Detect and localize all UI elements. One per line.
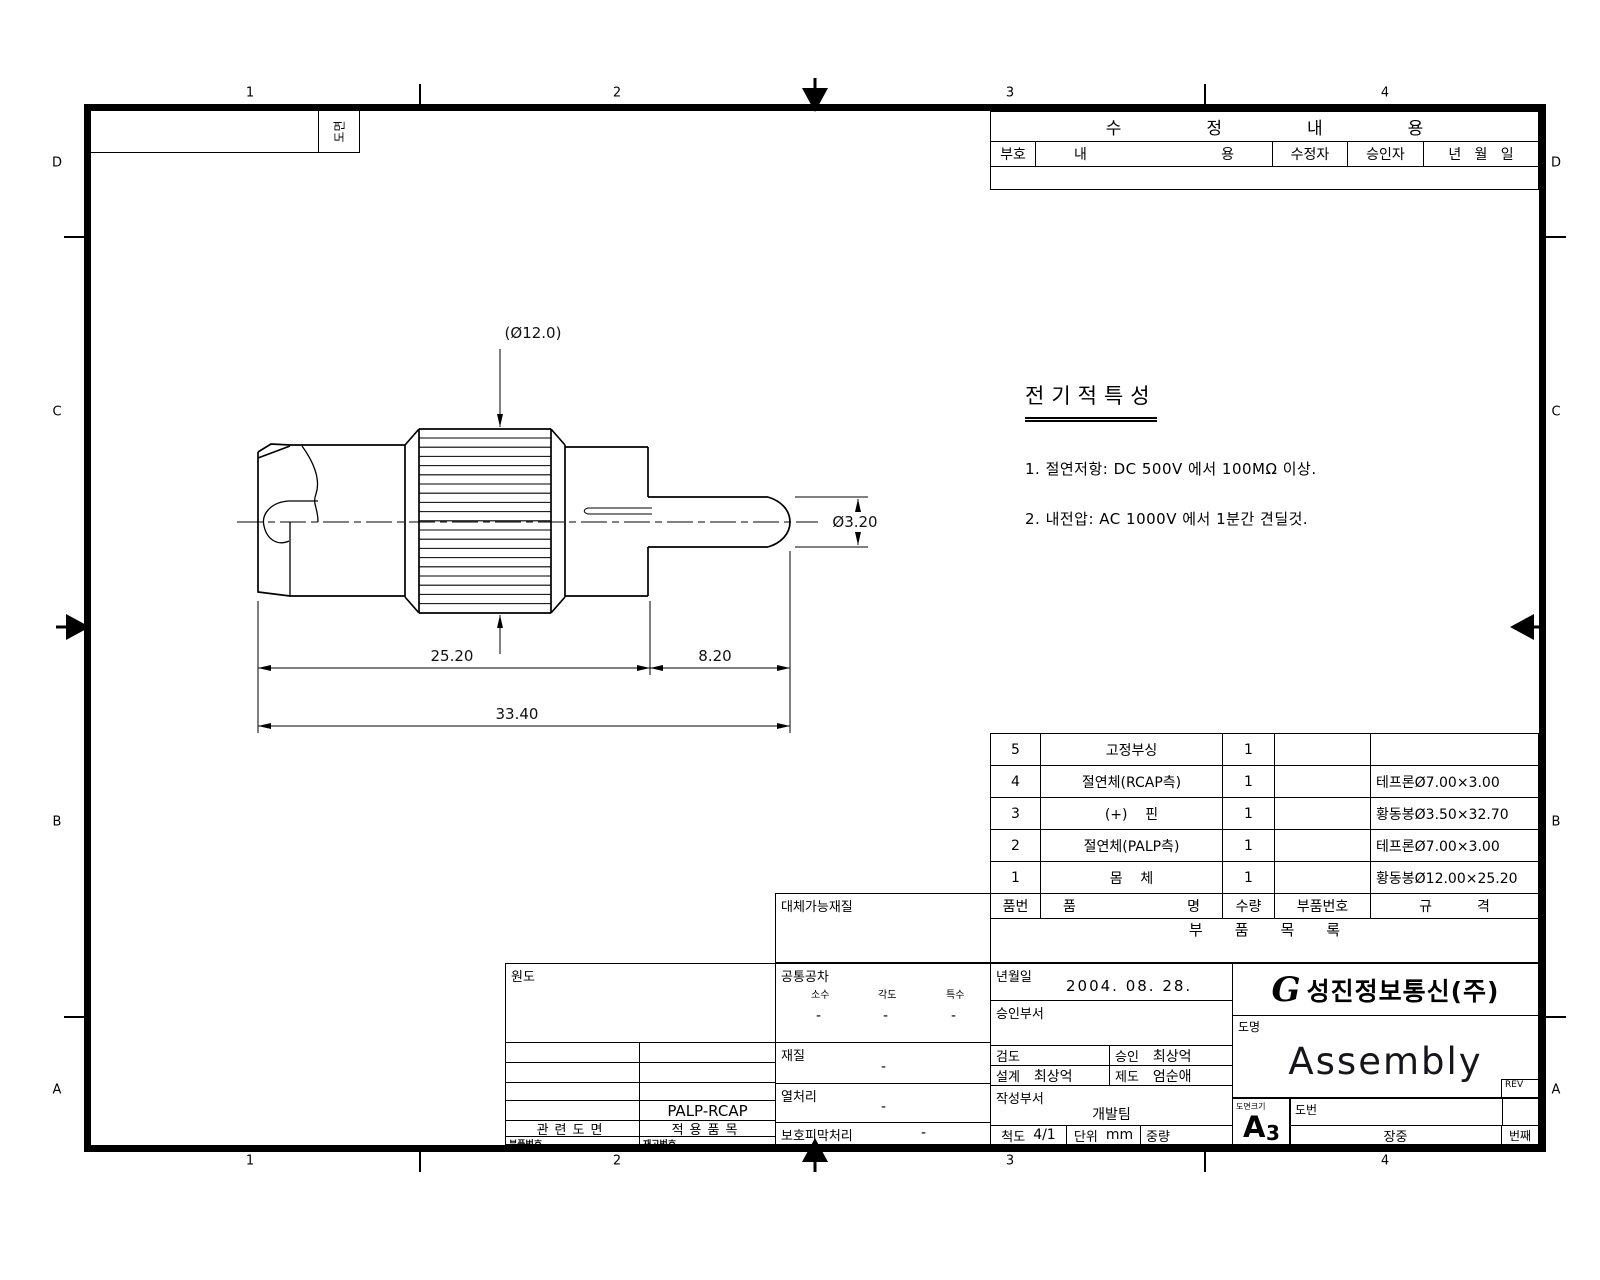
heat-treatment-value: - bbox=[881, 1099, 886, 1115]
design-label: 설계 bbox=[996, 1066, 1020, 1085]
part-qty: 1 bbox=[1223, 734, 1275, 765]
zone-left-b: B bbox=[53, 815, 62, 830]
material-label: 재질 bbox=[781, 1045, 805, 1064]
drawing-title-value: Assembly bbox=[1288, 1040, 1482, 1083]
parts-footer-row: 부품목록 bbox=[991, 919, 1538, 940]
material-value: - bbox=[881, 1059, 886, 1075]
scale-unit-weight-row: 척도 4/1 단위 mm 중량 bbox=[990, 1125, 1233, 1145]
unit-value: mm bbox=[1106, 1127, 1133, 1143]
part-spec: 테프론Ø7.00×3.00 bbox=[1371, 830, 1538, 861]
zone-left-c: C bbox=[52, 405, 61, 420]
zone-right-a: A bbox=[1552, 1083, 1561, 1098]
corner-label-cell: 도면 bbox=[319, 111, 359, 151]
rev-label: REV bbox=[1501, 1079, 1538, 1097]
parts-list-title: 부품목록 bbox=[1189, 919, 1372, 940]
knurl-lines bbox=[419, 438, 551, 604]
part-name: 절연체(RCAP측) bbox=[1041, 766, 1223, 797]
drawing-title-label: 도명 bbox=[1238, 1018, 1260, 1035]
related-drawing-label: 관련도면 bbox=[506, 1121, 640, 1136]
zone-right-d: D bbox=[1551, 156, 1561, 171]
zone-top-2: 2 bbox=[613, 86, 621, 101]
drawing-no-box: 도번 bbox=[1289, 1098, 1539, 1126]
approval-dept-box: 승인부서 bbox=[990, 1000, 1233, 1046]
applied-item-value: PALP-RCAP bbox=[640, 1101, 775, 1120]
zone-top-4: 4 bbox=[1381, 86, 1389, 101]
dimension-lines bbox=[258, 349, 868, 733]
part-no-small-label: 부품번호 bbox=[506, 1137, 640, 1150]
approve-value: 최상억 bbox=[1153, 1046, 1192, 1066]
dimension-labels: (Ø12.0) 25.20 8.20 33.40 Ø3.20 bbox=[431, 324, 878, 723]
revision-col-no: 부호 bbox=[991, 142, 1036, 166]
zone-tick bbox=[1204, 1152, 1206, 1172]
revision-header-row: 부호 내 용 수정자 승인자 년 월 일 bbox=[991, 142, 1538, 167]
company-box: G 성진정보통신(주) bbox=[1232, 963, 1539, 1016]
parts-row: 2 절연체(PALP측) 1 테프론Ø7.00×3.00 bbox=[991, 830, 1538, 862]
parts-row: 1 몸 체 1 황동봉Ø12.00×25.20 bbox=[991, 862, 1538, 894]
origin-label: 원도 bbox=[511, 966, 535, 985]
date-box: 년월일 2004. 08. 28. bbox=[990, 963, 1233, 1001]
coating-label: 보호피막처리 bbox=[781, 1125, 853, 1144]
approve-label: 승인 bbox=[1115, 1046, 1139, 1065]
part-partno bbox=[1275, 862, 1371, 893]
revision-title: 수정내용 bbox=[1106, 114, 1509, 139]
scale-label: 척도 bbox=[1001, 1126, 1025, 1145]
heat-treatment-label: 열처리 bbox=[781, 1086, 817, 1105]
origin-box: 원도 bbox=[505, 963, 776, 1043]
parts-row: 4 절연체(RCAP측) 1 테프론Ø7.00×3.00 bbox=[991, 766, 1538, 798]
sheet-of-label: 장중 bbox=[1290, 1126, 1502, 1144]
parts-row: 3 (+) 핀 1 황동봉Ø3.50×32.70 bbox=[991, 798, 1538, 830]
corner-label: 도면 bbox=[331, 120, 348, 142]
zone-bottom-2: 2 bbox=[613, 1154, 621, 1169]
tolerance-val-special: - bbox=[951, 1008, 956, 1024]
company-name: 성진정보통신(주) bbox=[1307, 972, 1500, 1008]
scale-value: 4/1 bbox=[1033, 1127, 1056, 1143]
drawing-no-label: 도번 bbox=[1295, 1101, 1317, 1118]
grid-small-label-row: 부품번호 재고번호 bbox=[506, 1137, 775, 1150]
revision-col-approver: 승인자 bbox=[1348, 142, 1424, 166]
part-partno bbox=[1275, 830, 1371, 861]
writing-dept-box: 작성부서 개발팀 bbox=[990, 1085, 1233, 1126]
parts-header-spec: 규격 bbox=[1371, 894, 1538, 918]
company-logo-icon: G bbox=[1272, 973, 1301, 1007]
tolerance-val-decimal: - bbox=[816, 1008, 821, 1024]
zone-tick bbox=[1546, 236, 1566, 238]
zone-bottom-1: 1 bbox=[246, 1154, 254, 1169]
draft-label: 제도 bbox=[1115, 1066, 1139, 1085]
zone-tick bbox=[1204, 84, 1206, 104]
drawing-title-box: 도명 Assembly REV bbox=[1232, 1015, 1539, 1098]
dim-pin-dia: Ø3.20 bbox=[832, 513, 877, 531]
zone-top-3: 3 bbox=[1006, 86, 1014, 101]
heat-treatment-box: 열처리 - bbox=[775, 1083, 991, 1123]
revision-title-row: 수정내용 bbox=[991, 112, 1538, 142]
engineering-drawing-sheet: { "sheet": { "zones_h": ["1","2","3","4"… bbox=[0, 0, 1600, 1280]
dim-total-length: 33.40 bbox=[496, 705, 539, 723]
approval-dept-label: 승인부서 bbox=[996, 1003, 1044, 1022]
rev-empty-cell bbox=[1502, 1099, 1538, 1125]
writing-dept-label: 작성부서 bbox=[996, 1088, 1044, 1107]
part-partno bbox=[1275, 734, 1371, 765]
revision-table: 수정내용 부호 내 용 수정자 승인자 년 월 일 bbox=[990, 111, 1539, 190]
parts-header-name: 품명 bbox=[1041, 894, 1223, 918]
sheet-nth-label: 번째 bbox=[1502, 1126, 1538, 1144]
part-spec: 황동봉Ø3.50×32.70 bbox=[1371, 798, 1538, 829]
grid-label-row: 관련도면 적용품목 bbox=[506, 1121, 775, 1137]
part-no: 4 bbox=[991, 766, 1041, 797]
sheet-size-value-3: 3 bbox=[1266, 1121, 1280, 1145]
related-drawing-grid: PALP-RCAP 관련도면 적용품목 부품번호 재고번호 bbox=[505, 1042, 776, 1145]
sheet-size-value-a: A bbox=[1243, 1110, 1265, 1144]
check-approve-row: 검도 승인 최상억 bbox=[990, 1045, 1233, 1066]
part-qty: 1 bbox=[1223, 830, 1275, 861]
applied-value-row: PALP-RCAP bbox=[506, 1101, 775, 1121]
parts-table: 5 고정부싱 1 4 절연체(RCAP측) 1 테프론Ø7.00×3.00 3 … bbox=[990, 733, 1539, 963]
draft-value: 엄순애 bbox=[1153, 1066, 1192, 1086]
connector-drawing: (Ø12.0) 25.20 8.20 33.40 Ø3.20 bbox=[200, 300, 900, 760]
tolerance-col-special: 특수 bbox=[946, 986, 964, 1001]
coating-box: 보호피막처리 - bbox=[775, 1122, 991, 1145]
zone-bottom-3: 3 bbox=[1006, 1154, 1014, 1169]
part-qty: 1 bbox=[1223, 766, 1275, 797]
sheet-count-row: 장중 번째 bbox=[1289, 1125, 1539, 1145]
unit-label: 단위 bbox=[1074, 1126, 1098, 1145]
design-value: 최상억 bbox=[1034, 1066, 1073, 1086]
zone-tick bbox=[419, 84, 421, 104]
part-partno bbox=[1275, 766, 1371, 797]
dim-pin-length: 8.20 bbox=[698, 647, 731, 665]
tolerance-label: 공통공차 bbox=[781, 966, 829, 985]
revision-col-date: 년 월 일 bbox=[1424, 142, 1538, 166]
part-no: 1 bbox=[991, 862, 1041, 893]
part-no: 2 bbox=[991, 830, 1041, 861]
part-partno bbox=[1275, 798, 1371, 829]
parts-header-qty: 수량 bbox=[1223, 894, 1275, 918]
electrical-note-2: 2. 내전압: AC 1000V 에서 1분간 견딜것. bbox=[1025, 508, 1317, 529]
alt-material-label: 대체가능재질 bbox=[781, 896, 853, 915]
dim-knurl-dia: (Ø12.0) bbox=[505, 324, 562, 342]
zone-left-a: A bbox=[53, 1083, 62, 1098]
check-label: 검도 bbox=[991, 1046, 1110, 1065]
tolerance-val-angle: - bbox=[883, 1008, 888, 1024]
design-draft-row: 설계 최상억 제도 엄순애 bbox=[990, 1065, 1233, 1086]
part-qty: 1 bbox=[1223, 798, 1275, 829]
zone-tick bbox=[64, 236, 84, 238]
part-name: 절연체(PALP측) bbox=[1041, 830, 1223, 861]
part-qty: 1 bbox=[1223, 862, 1275, 893]
material-box: 재질 - bbox=[775, 1042, 991, 1084]
zone-left-d: D bbox=[52, 156, 62, 171]
parts-header-partno: 부품번호 bbox=[1275, 894, 1371, 918]
zone-tick bbox=[419, 1152, 421, 1172]
sheet-size-box: 도면크기 A 3 bbox=[1232, 1098, 1291, 1145]
tolerance-box: 공통공차 소수 각도 특수 - - - bbox=[775, 963, 991, 1043]
date-value: 2004. 08. 28. bbox=[1066, 977, 1192, 995]
coating-value: - bbox=[921, 1125, 926, 1141]
revision-col-content-l: 내 bbox=[1074, 144, 1087, 164]
zone-right-c: C bbox=[1551, 405, 1560, 420]
revision-col-content: 내 용 bbox=[1036, 142, 1273, 166]
electrical-title: 전기적특성 bbox=[1025, 380, 1157, 422]
part-spec: 황동봉Ø12.00×25.20 bbox=[1371, 862, 1538, 893]
tolerance-col-decimal: 소수 bbox=[811, 986, 829, 1001]
part-spec bbox=[1371, 734, 1538, 765]
revision-col-content-r: 용 bbox=[1221, 144, 1234, 164]
date-label: 년월일 bbox=[996, 966, 1032, 985]
alt-material-box: 대체가능재질 bbox=[775, 893, 991, 963]
parts-row: 5 고정부싱 1 bbox=[991, 734, 1538, 766]
weight-label: 중량 bbox=[1141, 1126, 1232, 1144]
part-name: (+) 핀 bbox=[1041, 798, 1223, 829]
part-no: 3 bbox=[991, 798, 1041, 829]
writing-dept-value: 개발팀 bbox=[1092, 1104, 1131, 1124]
zone-bottom-4: 4 bbox=[1381, 1154, 1389, 1169]
dim-body-length: 25.20 bbox=[431, 647, 474, 665]
zone-tick bbox=[1546, 1016, 1566, 1018]
part-spec: 테프론Ø7.00×3.00 bbox=[1371, 766, 1538, 797]
applied-item-label: 적용품목 bbox=[640, 1121, 775, 1136]
parts-header-no: 품번 bbox=[991, 894, 1041, 918]
part-name: 몸 체 bbox=[1041, 862, 1223, 893]
parts-header-row: 품번 품명 수량 부품번호 규격 bbox=[991, 894, 1538, 919]
zone-right-b: B bbox=[1552, 815, 1561, 830]
electrical-notes: 전기적특성 1. 절연저항: DC 500V 에서 100MΩ 이상. 2. 내… bbox=[1025, 380, 1317, 529]
tolerance-col-angle: 각도 bbox=[878, 986, 896, 1001]
part-name: 고정부싱 bbox=[1041, 734, 1223, 765]
electrical-note-1: 1. 절연저항: DC 500V 에서 100MΩ 이상. bbox=[1025, 458, 1317, 479]
part-no: 5 bbox=[991, 734, 1041, 765]
zone-tick bbox=[64, 1016, 84, 1018]
stock-no-small-label: 재고번호 bbox=[640, 1137, 775, 1150]
zone-top-1: 1 bbox=[246, 86, 254, 101]
corner-box: 도면 bbox=[90, 110, 360, 153]
revision-col-reviser: 수정자 bbox=[1273, 142, 1348, 166]
